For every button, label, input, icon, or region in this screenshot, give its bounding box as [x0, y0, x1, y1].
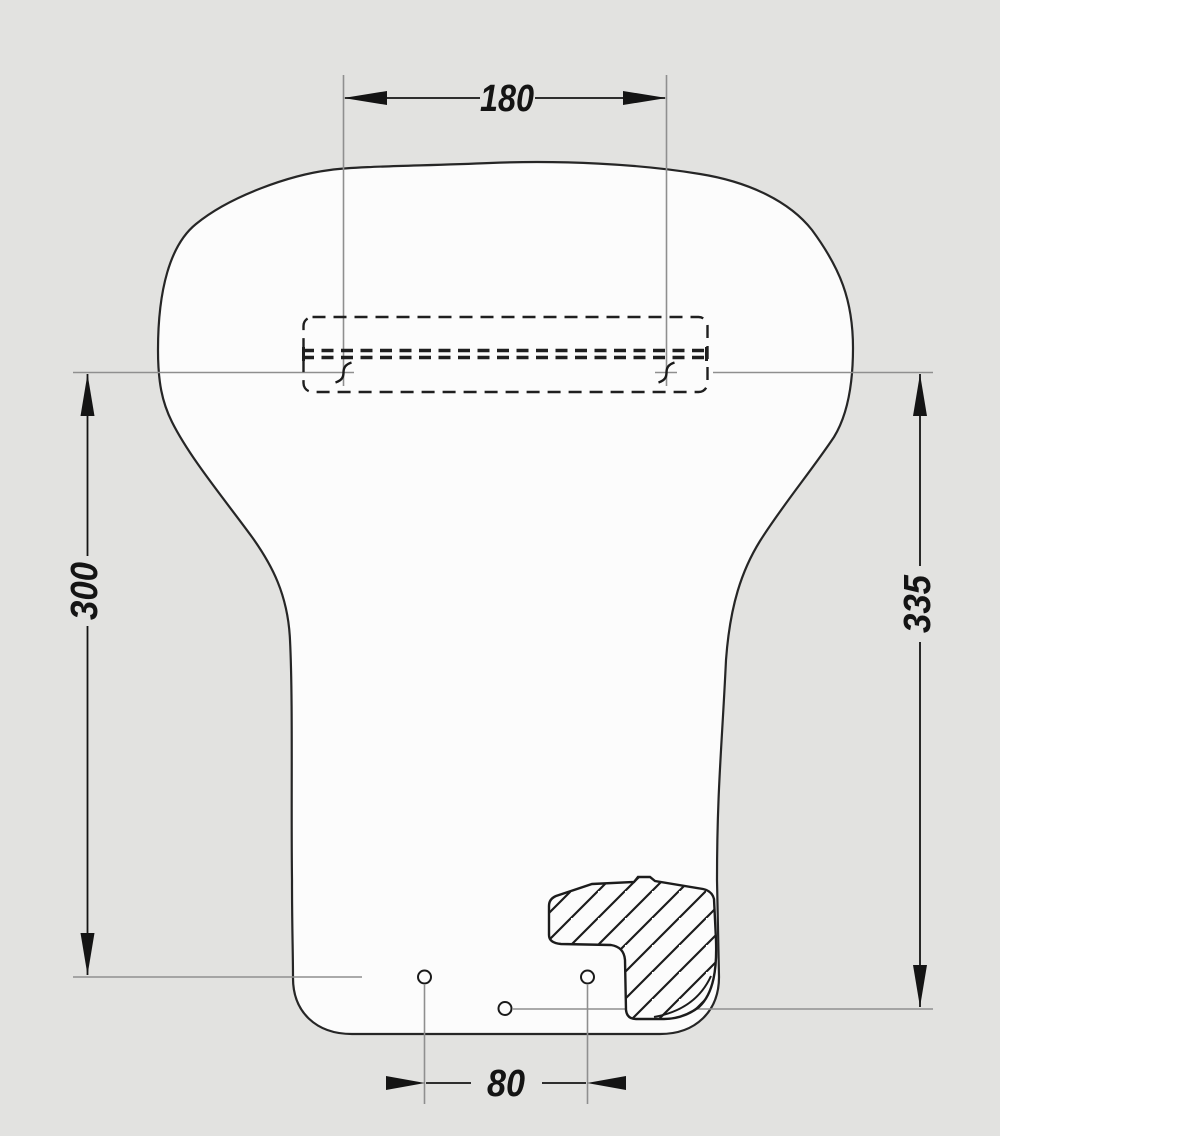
hole-left	[418, 971, 431, 984]
dim-value-top-width: 180	[480, 78, 534, 120]
drawing-page: 180 300 335 80	[0, 0, 1200, 1136]
hole-right	[581, 971, 594, 984]
hole-center	[499, 1002, 512, 1015]
dim-value-bottom-hole-spacing: 80	[487, 1063, 525, 1105]
dim-value-right-height: 335	[897, 574, 939, 633]
dim-value-left-height: 300	[64, 562, 106, 620]
right-blank-panel	[1000, 0, 1200, 1136]
technical-drawing: 180 300 335 80	[0, 0, 1200, 1136]
